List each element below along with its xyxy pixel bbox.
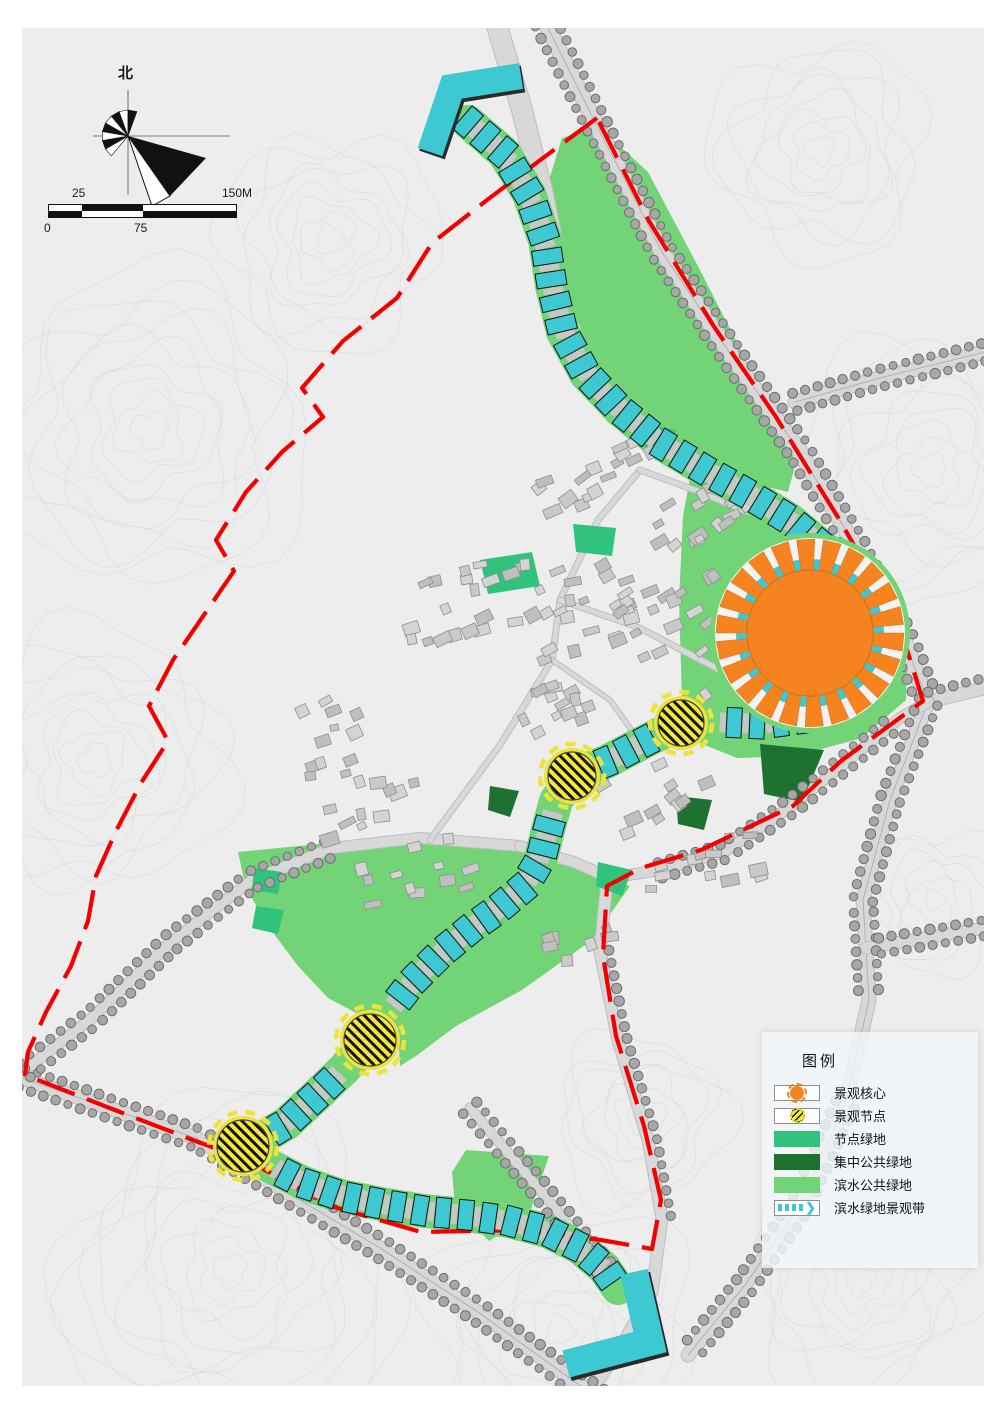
scale-label-0: 0 xyxy=(44,221,51,235)
scale-label-150m: 150M xyxy=(222,186,252,200)
legend-item-node: 景观节点 xyxy=(774,1104,978,1127)
landscape-core-icon xyxy=(774,1085,820,1101)
planning-map: 北 25 150M 0 75 图例 景观核心 景观节点 节点绿地 集中公共绿地 … xyxy=(0,0,1000,1415)
scale-label-75: 75 xyxy=(134,221,147,235)
central-public-green-swatch xyxy=(774,1154,820,1170)
scale-label-25: 25 xyxy=(72,186,85,200)
legend-item-core: 景观核心 xyxy=(774,1081,978,1104)
north-label: 北 xyxy=(118,62,133,83)
legend-item-waterfront-belt: ❯ 滨水绿地景观带 xyxy=(774,1196,978,1219)
legend-title: 图例 xyxy=(802,1050,978,1071)
scale-bar xyxy=(48,204,237,218)
node-green-swatch xyxy=(774,1131,820,1147)
landscape-core xyxy=(710,533,910,733)
legend-item-node-green: 节点绿地 xyxy=(774,1127,978,1150)
waterfront-public-green-swatch xyxy=(774,1177,820,1193)
landscape-node-icon xyxy=(774,1108,820,1124)
legend-item-central-green: 集中公共绿地 xyxy=(774,1150,978,1173)
legend-panel: 图例 景观核心 景观节点 节点绿地 集中公共绿地 滨水公共绿地 ❯ 滨水绿地景观… xyxy=(762,1032,978,1268)
legend-item-waterfront-green: 滨水公共绿地 xyxy=(774,1173,978,1196)
waterfront-belt-arrow-icon: ❯ xyxy=(774,1200,820,1216)
